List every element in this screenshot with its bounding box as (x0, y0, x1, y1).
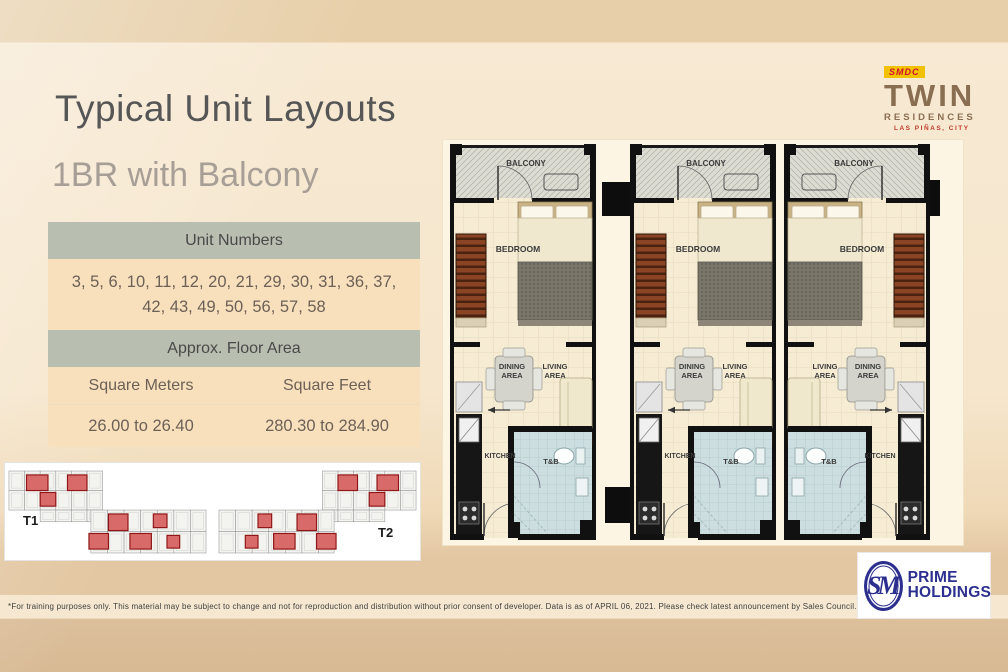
living-area-label-line1: LIVING (722, 362, 747, 371)
balcony-label: BALCONY (506, 159, 546, 168)
plan-geometry (784, 144, 930, 540)
brand-name: TWIN (884, 80, 1002, 111)
unit-info-table: Unit Numbers 3, 5, 6, 10, 11, 12, 20, 21… (48, 222, 420, 447)
floor-plan-unit-b: BALCONY BEDROOM DINING AREA LIVING AREA … (628, 142, 778, 542)
sm-holdings-line: HOLDINGS (908, 586, 991, 601)
highlighted-unit (130, 533, 151, 549)
plan-geometry (630, 144, 776, 540)
living-area-label-line2: AREA (814, 371, 836, 380)
highlighted-unit (274, 533, 295, 549)
disclaimer-text: *For training purposes only. This materi… (0, 602, 857, 611)
living-area-label-line1: LIVING (812, 362, 837, 371)
highlighted-unit (297, 514, 317, 531)
smdc-badge: SMDC (884, 66, 925, 78)
dining-area-label-line2: AREA (681, 371, 703, 380)
tb-label: T&B (821, 457, 837, 466)
plan-geometry (450, 144, 596, 540)
col-square-feet: Square Feet (234, 377, 420, 395)
sm-emblem-icon: SM (864, 561, 903, 611)
bedroom-label: BEDROOM (676, 244, 720, 254)
col-square-meters: Square Meters (48, 377, 234, 395)
highlighted-unit (338, 475, 358, 491)
floor-plans-panel: BALCONY BEDROOM DINING AREA LIVING AREA … (443, 140, 963, 545)
floor-plan-unit-a: BALCONY BEDROOM DINING AREA LIVING AREA … (448, 142, 598, 542)
highlighted-unit (153, 514, 167, 528)
highlighted-unit (317, 533, 337, 549)
tb-label: T&B (723, 457, 739, 466)
twin-residences-logo: SMDC TWIN RESIDENCES LAS PIÑAS, CITY (884, 62, 1002, 132)
highlighted-unit (40, 492, 56, 506)
dining-area-label-line1: DINING (679, 362, 705, 371)
living-area-label-line2: AREA (724, 371, 746, 380)
dining-area-label-line2: AREA (857, 371, 879, 380)
floorplate-t1 (7, 466, 207, 558)
area-values-row: 26.00 to 26.40 280.30 to 284.90 (48, 405, 420, 447)
highlighted-unit (67, 475, 87, 491)
dining-area-label-line1: DINING (855, 362, 881, 371)
area-columns-row: Square Meters Square Feet (48, 367, 420, 405)
highlighted-unit (258, 514, 272, 528)
unit-numbers-value: 3, 5, 6, 10, 11, 12, 20, 21, 29, 30, 31,… (48, 259, 420, 330)
kitchen-label: KITCHEN (664, 453, 695, 460)
floor-area-header: Approx. Floor Area (48, 330, 420, 367)
highlighted-unit (27, 475, 48, 491)
page-subtitle: 1BR with Balcony (52, 156, 318, 195)
floor-plan-unit-c: BALCONY BEDROOM DINING AREA LIVING AREA … (782, 142, 932, 542)
sm-emblem-text: SM (867, 571, 897, 601)
value-square-feet: 280.30 to 284.90 (234, 417, 420, 436)
highlighted-unit (377, 475, 398, 491)
living-area-label-line1: LIVING (542, 362, 567, 371)
living-area-label-line2: AREA (544, 371, 566, 380)
kitchen-label: KITCHEN (864, 453, 895, 460)
highlighted-unit (108, 514, 128, 531)
bedroom-label: BEDROOM (496, 244, 540, 254)
highlighted-unit (167, 535, 180, 548)
floorplate-t2 (218, 466, 418, 558)
highlighted-unit (89, 533, 109, 549)
balcony-label: BALCONY (686, 159, 726, 168)
floorplates-panel: T1 T2 (5, 463, 420, 560)
highlighted-unit (245, 535, 258, 548)
unit-numbers-header: Unit Numbers (48, 222, 420, 259)
dining-area-label-line2: AREA (501, 371, 523, 380)
tb-label: T&B (543, 457, 559, 466)
page-title: Typical Unit Layouts (55, 88, 396, 130)
brand-residences: RESIDENCES (884, 112, 1002, 123)
highlighted-unit (369, 492, 385, 506)
slide-background: Typical Unit Layouts 1BR with Balcony Un… (0, 0, 1008, 672)
dining-area-label-line1: DINING (499, 362, 525, 371)
disclaimer-strip: *For training purposes only. This materi… (0, 595, 1008, 618)
brand-location: LAS PIÑAS, CITY (894, 125, 1002, 132)
value-square-meters: 26.00 to 26.40 (48, 417, 234, 436)
kitchen-label: KITCHEN (484, 453, 515, 460)
balcony-label: BALCONY (834, 159, 874, 168)
bedroom-label: BEDROOM (840, 244, 884, 254)
sm-prime-holdings-logo: SM PRIME HOLDINGS (858, 553, 990, 618)
sm-company-name: PRIME HOLDINGS (908, 571, 991, 600)
